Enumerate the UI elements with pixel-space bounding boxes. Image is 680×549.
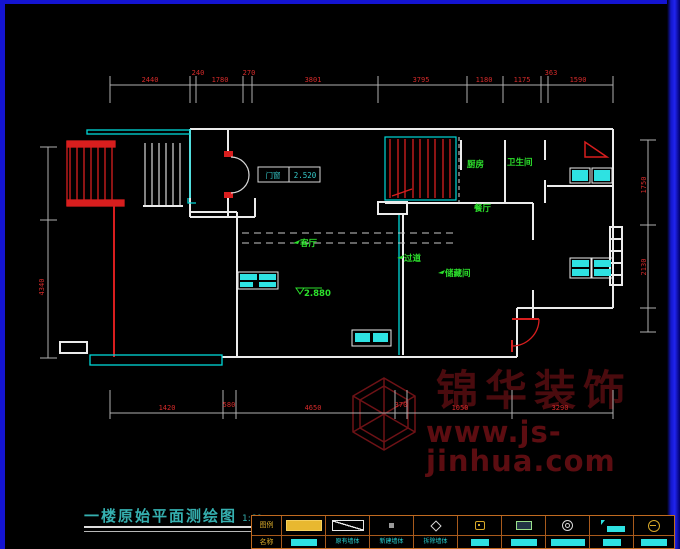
staircase-left xyxy=(67,141,124,357)
dimension-left-value: 4340 xyxy=(38,279,46,296)
legend-col-3: 新建墙体 xyxy=(370,516,414,548)
entry-tag-value: 2.520 xyxy=(294,171,317,180)
dimension-left xyxy=(40,147,57,358)
dimension-right xyxy=(640,140,656,332)
drawing-title-text: 一楼原始平面测绘图 xyxy=(84,507,237,525)
svg-text:3795: 3795 xyxy=(413,76,430,84)
svg-text:3801: 3801 xyxy=(305,76,322,84)
dimension-top xyxy=(110,76,613,103)
legend-label: 原有墙体 xyxy=(335,539,359,545)
legend-col-4: 拆除墙体 xyxy=(414,516,458,548)
circle-minus-icon xyxy=(648,520,660,532)
svg-text:厨房: 厨房 xyxy=(467,159,484,170)
svg-text:4650: 4650 xyxy=(305,404,322,412)
legend-swatch xyxy=(291,539,317,546)
legend-col-2: 原有墙体 xyxy=(326,516,370,548)
lock-icon xyxy=(475,521,485,530)
legend-col-9 xyxy=(634,516,674,548)
appliance-icon xyxy=(516,521,532,530)
svg-text:240: 240 xyxy=(192,69,205,77)
svg-text:餐厅: 餐厅 xyxy=(473,203,492,214)
svg-text:2.880: 2.880 xyxy=(304,289,331,299)
legend-col-5 xyxy=(458,516,502,548)
legend-swatch xyxy=(551,539,585,546)
circle-glyph-icon xyxy=(562,520,573,531)
legend-header-column: 图例 名称 xyxy=(252,516,282,548)
staircase-top xyxy=(385,137,459,203)
svg-text:270: 270 xyxy=(243,69,256,77)
legend-label: 拆除墙体 xyxy=(423,539,447,545)
svg-text:1780: 1780 xyxy=(212,76,229,84)
flag-bar-icon xyxy=(599,520,625,532)
entry-tag-label: 门窗 xyxy=(266,170,281,180)
legend-table: 图例 名称 原有墙体 新建墙体 拆除墙体 xyxy=(251,515,675,549)
cad-viewport[interactable]: 锦华装饰 www.js-jinhua.com 2440 240 17 xyxy=(0,0,680,549)
legend-swatch xyxy=(511,539,537,546)
dimension-right-value-1: 1750 xyxy=(640,177,648,194)
corner-door-mark xyxy=(585,142,607,157)
svg-text:580: 580 xyxy=(223,401,236,409)
diagonal-rect-icon xyxy=(332,520,364,531)
svg-text:370: 370 xyxy=(395,401,408,409)
entry-double-door xyxy=(224,151,249,198)
title-underline-2 xyxy=(84,531,252,532)
diamond-icon xyxy=(430,520,441,531)
svg-text:卫生间: 卫生间 xyxy=(507,157,533,168)
watermark-logo-icon xyxy=(353,378,415,450)
svg-text:客厅: 客厅 xyxy=(299,238,318,249)
label-arrow-icon xyxy=(438,270,445,274)
svg-text:1590: 1590 xyxy=(570,76,587,84)
legend-col-8 xyxy=(590,516,634,548)
title-underline xyxy=(84,526,252,528)
svg-text:储藏间: 储藏间 xyxy=(444,268,471,279)
svg-text:1050: 1050 xyxy=(452,404,469,412)
svg-text:1180: 1180 xyxy=(476,76,493,84)
staircase-middle xyxy=(145,143,180,205)
legend-corner-bottom: 名称 xyxy=(260,539,274,546)
svg-text:过道: 过道 xyxy=(404,253,422,264)
legend-swatch xyxy=(641,539,667,546)
square-dot-icon xyxy=(389,523,394,528)
legend-corner-top: 图例 xyxy=(260,522,274,529)
svg-text:1420: 1420 xyxy=(159,404,176,412)
floorplan-drawing: 2440 240 1780 270 3801 3795 1180 1175 36… xyxy=(0,0,680,549)
beam-dashed-lines xyxy=(242,233,456,243)
entry-tag-box: 门窗 2.520 xyxy=(258,167,320,182)
dimension-top-values: 2440 240 1780 270 3801 3795 1180 1175 36… xyxy=(142,69,587,84)
dimension-right-value-2: 2130 xyxy=(640,259,648,276)
window-symbols xyxy=(238,168,613,346)
legend-col-1 xyxy=(282,516,326,548)
drawing-title: 一楼原始平面测绘图1:60 xyxy=(84,505,264,526)
legend-col-7 xyxy=(546,516,590,548)
legend-label: 新建墙体 xyxy=(379,539,403,545)
dimension-bottom xyxy=(110,390,613,419)
legend-col-6 xyxy=(502,516,546,548)
svg-text:1175: 1175 xyxy=(514,76,531,84)
svg-text:363: 363 xyxy=(545,69,558,77)
filled-bar-icon xyxy=(286,520,322,531)
svg-text:3290: 3290 xyxy=(552,404,569,412)
legend-swatch xyxy=(603,539,621,546)
legend-swatch xyxy=(471,539,489,546)
elevation-marker: 2.880 xyxy=(296,288,331,299)
svg-text:2440: 2440 xyxy=(142,76,159,84)
